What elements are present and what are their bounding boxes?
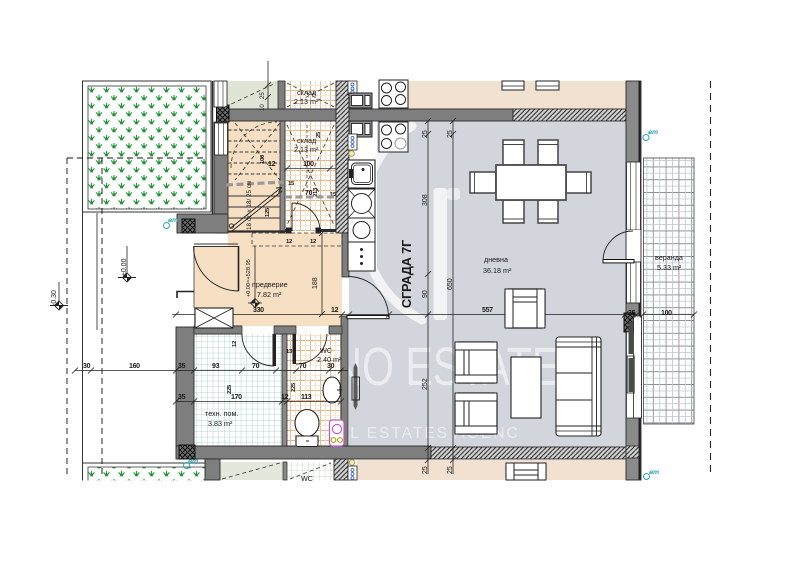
svg-text:техн. пом.: техн. пом. — [205, 409, 238, 418]
svg-text:35: 35 — [178, 363, 186, 370]
svg-text:склад: склад — [297, 136, 317, 145]
svg-text:вт: вт — [168, 217, 178, 224]
svg-text:18 ст. x 18/ 25 cм: 18 ст. x 18/ 25 cм — [246, 181, 253, 230]
svg-text:36.18 m²: 36.18 m² — [483, 266, 512, 275]
svg-text:35: 35 — [628, 310, 636, 317]
svg-text:веранда: веранда — [655, 253, 683, 262]
svg-text:12: 12 — [281, 394, 289, 401]
svg-text:30: 30 — [327, 363, 335, 370]
svg-text:вт: вт — [648, 129, 658, 136]
svg-text:25: 25 — [316, 131, 322, 138]
svg-text:вт: вт — [649, 469, 659, 476]
svg-text:12: 12 — [286, 239, 293, 245]
svg-text:93: 93 — [212, 363, 220, 370]
svg-text:160: 160 — [129, 363, 140, 370]
svg-text:WC: WC — [301, 474, 313, 483]
svg-text:5.33 m²: 5.33 m² — [657, 263, 682, 272]
svg-text:склад: склад — [297, 88, 317, 97]
svg-text:25: 25 — [422, 130, 429, 138]
svg-text:100: 100 — [661, 310, 672, 317]
svg-text:дневна: дневна — [484, 255, 508, 264]
svg-text:100: 100 — [260, 154, 266, 164]
svg-text:225: 225 — [227, 384, 233, 394]
svg-text:125: 125 — [265, 207, 271, 217]
svg-text:70: 70 — [299, 363, 307, 370]
svg-text:10: 10 — [260, 104, 266, 111]
svg-text:15: 15 — [288, 181, 295, 187]
svg-text:650: 650 — [447, 278, 454, 290]
svg-text:225: 225 — [291, 382, 297, 392]
svg-text:2.13 m²: 2.13 m² — [294, 145, 319, 154]
svg-text:предверие: предверие — [252, 280, 288, 289]
svg-text:170: 170 — [231, 394, 242, 401]
svg-text:113: 113 — [301, 394, 312, 401]
svg-text:90: 90 — [422, 290, 429, 298]
svg-text:25: 25 — [260, 92, 266, 99]
svg-text:2.40 m²: 2.40 m² — [317, 355, 342, 364]
svg-text:12: 12 — [232, 340, 238, 347]
svg-text:25: 25 — [422, 466, 429, 474]
svg-text:188: 188 — [312, 277, 319, 289]
svg-text:12: 12 — [310, 239, 317, 245]
svg-text:2.13 m²: 2.13 m² — [294, 97, 319, 106]
svg-text:WC: WC — [320, 346, 332, 355]
svg-text:СГРАДА 7Г: СГРАДА 7Г — [399, 240, 414, 308]
svg-text:70: 70 — [252, 363, 260, 370]
svg-text:252: 252 — [422, 378, 429, 390]
svg-text:3.83 m²: 3.83 m² — [208, 419, 233, 428]
svg-text:557: 557 — [482, 307, 493, 314]
svg-text:100: 100 — [303, 161, 314, 168]
svg-text:12: 12 — [331, 307, 339, 314]
svg-text:25: 25 — [447, 466, 454, 474]
svg-text:308: 308 — [422, 194, 429, 206]
svg-text:35: 35 — [178, 394, 186, 401]
svg-text:13: 13 — [286, 349, 293, 355]
svg-text:330: 330 — [253, 307, 264, 314]
svg-text:25: 25 — [447, 130, 454, 138]
svg-text:12: 12 — [268, 161, 276, 168]
svg-text:30: 30 — [83, 363, 91, 370]
svg-text:+0.00=+528.95: +0.00=+528.95 — [246, 259, 252, 297]
svg-text:7.82 m²: 7.82 m² — [257, 290, 282, 299]
